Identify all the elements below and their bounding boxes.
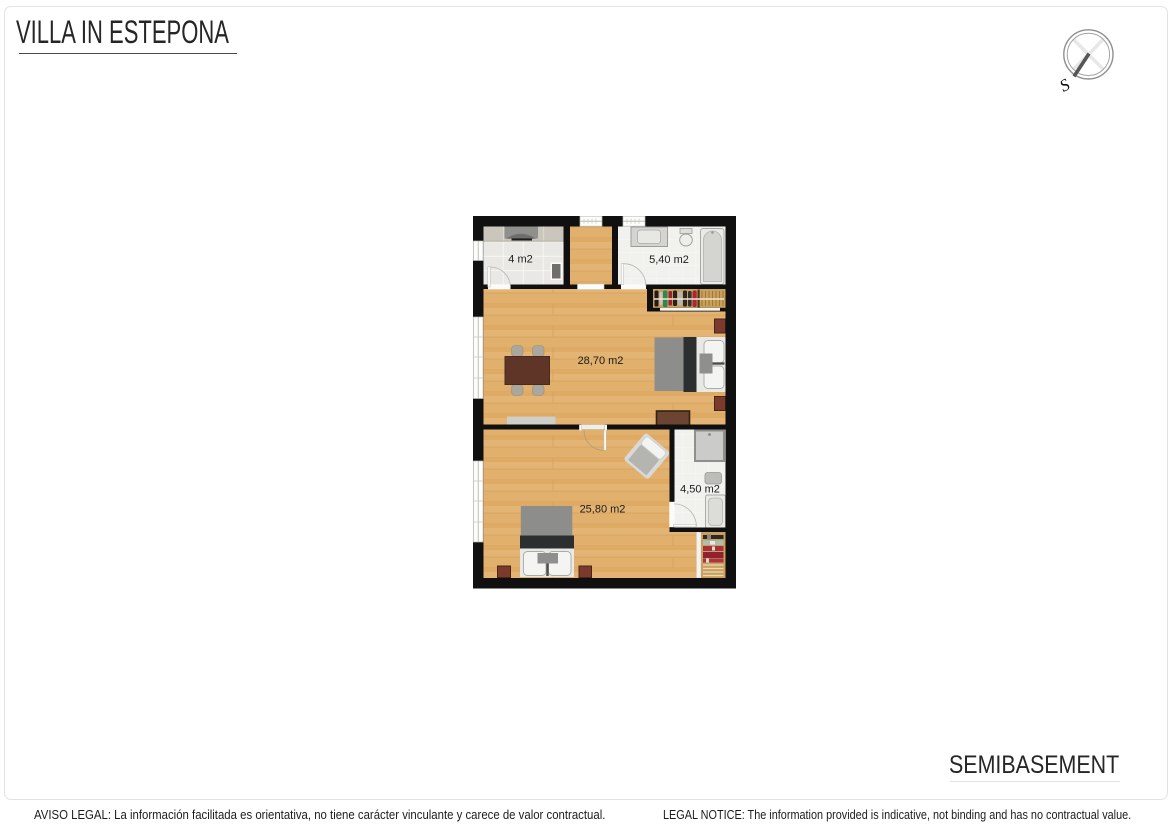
svg-text:5,40 m2: 5,40 m2	[649, 254, 689, 266]
svg-text:S: S	[1056, 75, 1073, 96]
svg-text:28,70 m2: 28,70 m2	[578, 355, 624, 367]
svg-text:4 m2: 4 m2	[508, 254, 532, 266]
svg-text:25,80 m2: 25,80 m2	[580, 504, 626, 516]
svg-text:4,50 m2: 4,50 m2	[680, 484, 720, 496]
